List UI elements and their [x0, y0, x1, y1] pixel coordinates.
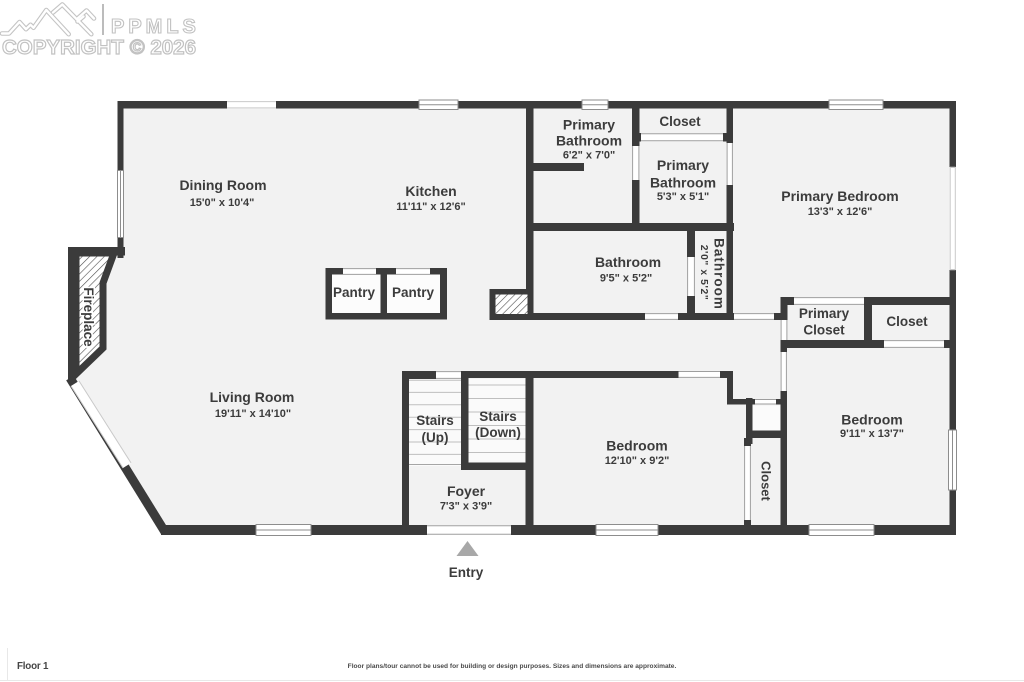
svg-text:Primary: Primary — [799, 306, 850, 321]
svg-text:Fireplace: Fireplace — [81, 287, 96, 347]
svg-text:Dining Room: Dining Room — [179, 177, 266, 193]
svg-text:Bedroom: Bedroom — [841, 412, 902, 428]
svg-text:(Down): (Down) — [475, 425, 521, 440]
svg-text:Closet: Closet — [803, 323, 845, 338]
svg-text:Bathroom: Bathroom — [712, 238, 727, 310]
svg-text:Pantry: Pantry — [392, 285, 435, 300]
svg-text:Primary Bedroom: Primary Bedroom — [781, 188, 898, 204]
svg-text:(Up): (Up) — [422, 430, 449, 445]
svg-text:15'0" x 10'4": 15'0" x 10'4" — [190, 197, 255, 209]
svg-text:Primary: Primary — [657, 157, 709, 173]
svg-text:Bathroom: Bathroom — [556, 133, 622, 149]
svg-text:Closet: Closet — [659, 114, 701, 129]
svg-text:Foyer: Foyer — [447, 483, 486, 499]
svg-text:6'2" x 7'0": 6'2" x 7'0" — [563, 150, 615, 162]
svg-text:2'0" x 5'2": 2'0" x 5'2" — [698, 245, 709, 301]
svg-text:Pantry: Pantry — [333, 285, 376, 300]
svg-text:5'3" x 5'1": 5'3" x 5'1" — [657, 191, 709, 203]
svg-text:11'11" x 12'6": 11'11" x 12'6" — [396, 201, 466, 213]
svg-text:13'3" x 12'6": 13'3" x 12'6" — [808, 206, 873, 218]
svg-text:Closet: Closet — [886, 314, 928, 329]
svg-text:Bedroom: Bedroom — [606, 438, 667, 454]
svg-text:9'11" x 13'7": 9'11" x 13'7" — [840, 428, 904, 440]
svg-text:Stairs: Stairs — [416, 413, 454, 428]
svg-text:Bathroom: Bathroom — [595, 254, 661, 270]
svg-text:Primary: Primary — [563, 117, 615, 133]
svg-text:9'5" x 5'2": 9'5" x 5'2" — [600, 273, 652, 285]
svg-text:Stairs: Stairs — [479, 409, 517, 424]
svg-text:7'3" x 3'9": 7'3" x 3'9" — [440, 501, 492, 513]
svg-text:Bathroom: Bathroom — [650, 175, 716, 191]
svg-text:Entry: Entry — [449, 565, 484, 580]
svg-text:Kitchen: Kitchen — [405, 183, 456, 199]
svg-text:Living Room: Living Room — [210, 389, 295, 405]
svg-text:Closet: Closet — [759, 461, 774, 501]
svg-text:12'10" x 9'2": 12'10" x 9'2" — [605, 455, 670, 467]
svg-text:19'11" x 14'10": 19'11" x 14'10" — [215, 408, 291, 420]
